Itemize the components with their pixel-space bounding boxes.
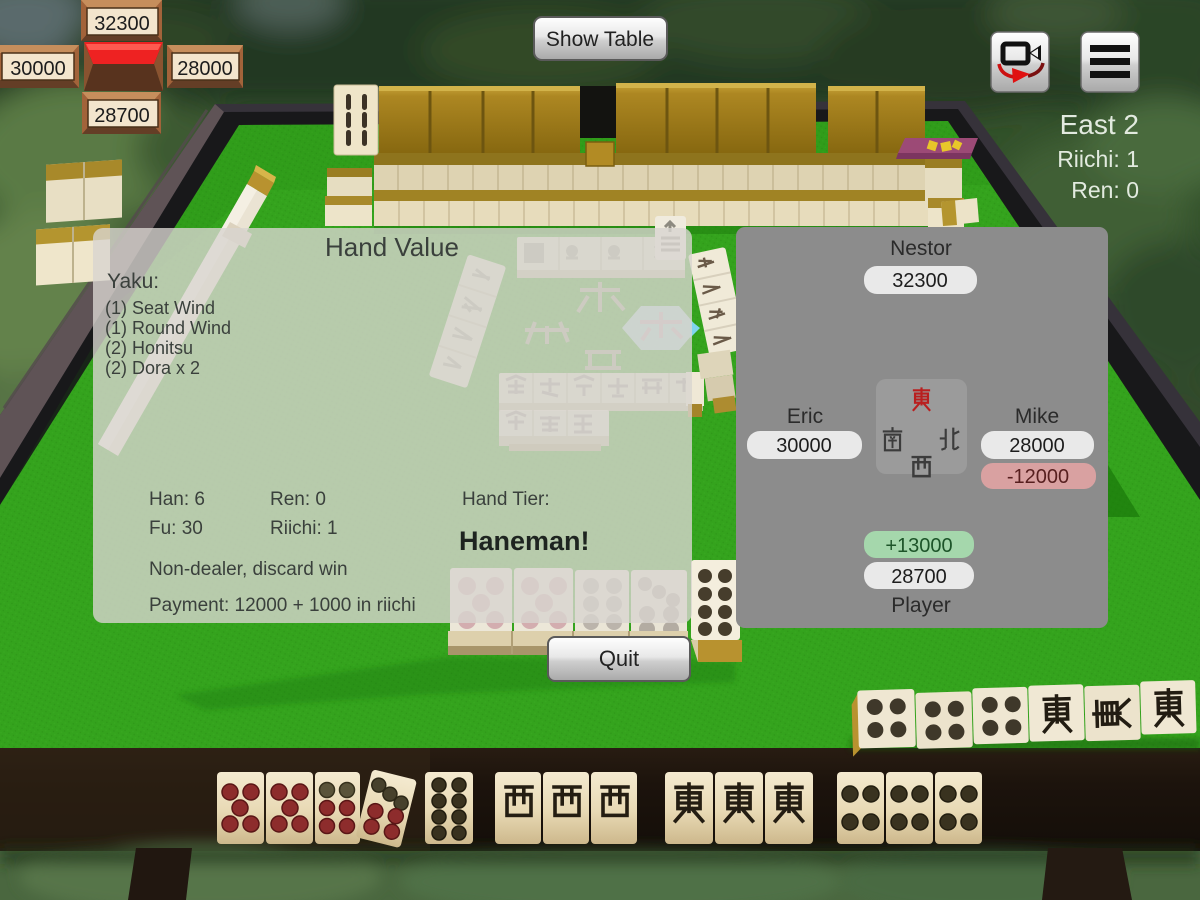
- svg-text:Ren: 0: Ren: 0: [1071, 177, 1139, 203]
- svg-text:28000: 28000: [1009, 435, 1065, 457]
- svg-text:28700: 28700: [891, 566, 947, 588]
- svg-text:Nestor: Nestor: [890, 237, 952, 260]
- svg-text:28000: 28000: [177, 58, 233, 80]
- svg-text:Yaku:: Yaku:: [107, 270, 159, 293]
- svg-text:32300: 32300: [94, 13, 150, 35]
- svg-text:(2) Dora x 2: (2) Dora x 2: [105, 358, 200, 378]
- svg-text:Non-dealer, discard win: Non-dealer, discard win: [149, 559, 348, 580]
- svg-text:-12000: -12000: [1007, 466, 1069, 488]
- svg-text:Fu: 30: Fu: 30: [149, 518, 203, 539]
- svg-text:Show Table: Show Table: [546, 28, 654, 51]
- svg-text:Riichi: 1: Riichi: 1: [1057, 146, 1139, 172]
- svg-text:+13000: +13000: [885, 535, 952, 557]
- svg-text:30000: 30000: [10, 58, 66, 80]
- svg-text:Eric: Eric: [787, 405, 823, 428]
- svg-text:Quit: Quit: [599, 646, 639, 671]
- svg-text:Riichi: 1: Riichi: 1: [270, 518, 338, 539]
- svg-text:Ren: 0: Ren: 0: [270, 489, 326, 510]
- svg-text:30000: 30000: [776, 435, 832, 457]
- svg-text:East 2: East 2: [1060, 109, 1139, 140]
- svg-text:(2) Honitsu: (2) Honitsu: [105, 338, 193, 358]
- svg-text:(1) Seat Wind: (1) Seat Wind: [105, 298, 215, 318]
- svg-text:28700: 28700: [94, 105, 150, 127]
- svg-text:Payment: 12000 + 1000 in riich: Payment: 12000 + 1000 in riichi: [149, 595, 416, 616]
- svg-text:Mike: Mike: [1015, 405, 1059, 428]
- svg-text:32300: 32300: [892, 270, 948, 292]
- svg-text:Haneman!: Haneman!: [459, 526, 590, 556]
- svg-text:(1) Round Wind: (1) Round Wind: [105, 318, 231, 338]
- svg-text:Han: 6: Han: 6: [149, 489, 205, 510]
- svg-text:Player: Player: [891, 594, 951, 617]
- svg-text:Hand Value: Hand Value: [325, 232, 459, 262]
- svg-text:Hand Tier:: Hand Tier:: [462, 489, 550, 510]
